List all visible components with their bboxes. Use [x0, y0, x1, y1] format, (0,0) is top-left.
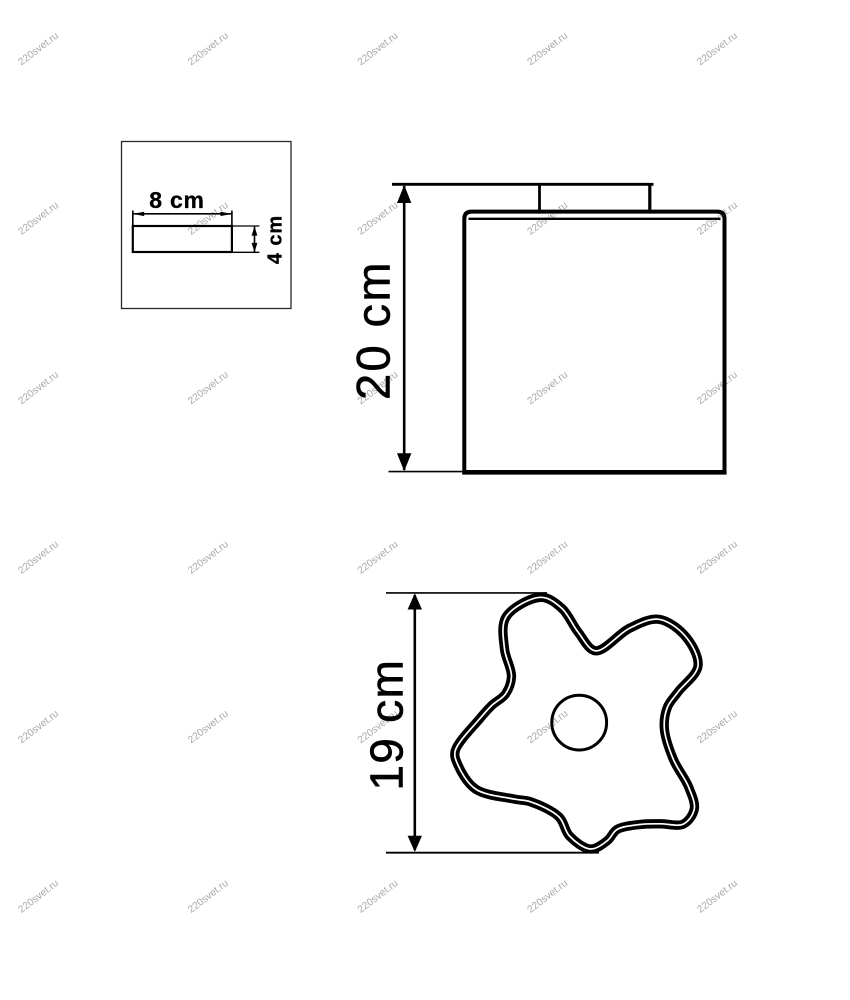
svg-text:8 cm: 8 cm — [149, 187, 205, 213]
svg-text:4 cm: 4 cm — [265, 215, 287, 264]
